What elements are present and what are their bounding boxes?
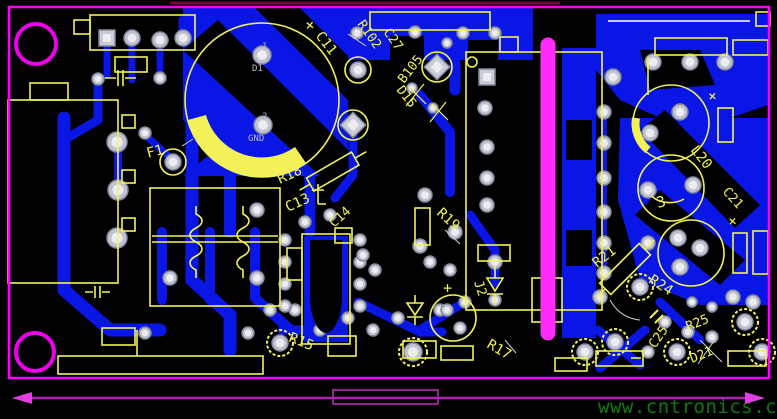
ic-body-cutout xyxy=(310,240,342,333)
mounting-hole-topleft xyxy=(16,24,56,64)
dimension-annotation: www.cntronics.com xyxy=(12,390,777,418)
refdes-f1: F1 xyxy=(145,142,165,162)
refdes-j2: J2 xyxy=(470,279,489,299)
refdes-d21: D21 xyxy=(688,344,715,367)
output-terminal-outline xyxy=(58,356,263,374)
refdes-r17: R17 xyxy=(484,337,514,364)
pad1-number: 1 xyxy=(262,42,267,52)
polarity-plus-c22: + xyxy=(443,279,452,297)
dimension-arrow-left xyxy=(12,392,32,404)
refdes-c14: C14 xyxy=(327,204,355,231)
pcb-canvas: F1 + C11 R102 C27 B105 D15 R18 C13 C14 R… xyxy=(0,0,777,419)
mounting-hole-bottomleft xyxy=(16,333,54,371)
pad1-net: D1 xyxy=(252,64,263,74)
pcb-layout-image: F1 + C11 R102 C27 B105 D15 R18 C13 C14 R… xyxy=(0,0,777,419)
pad2-number: 2 xyxy=(262,112,267,122)
refdes-r25: R25 xyxy=(684,312,711,335)
pad2-net: GND xyxy=(248,134,264,144)
